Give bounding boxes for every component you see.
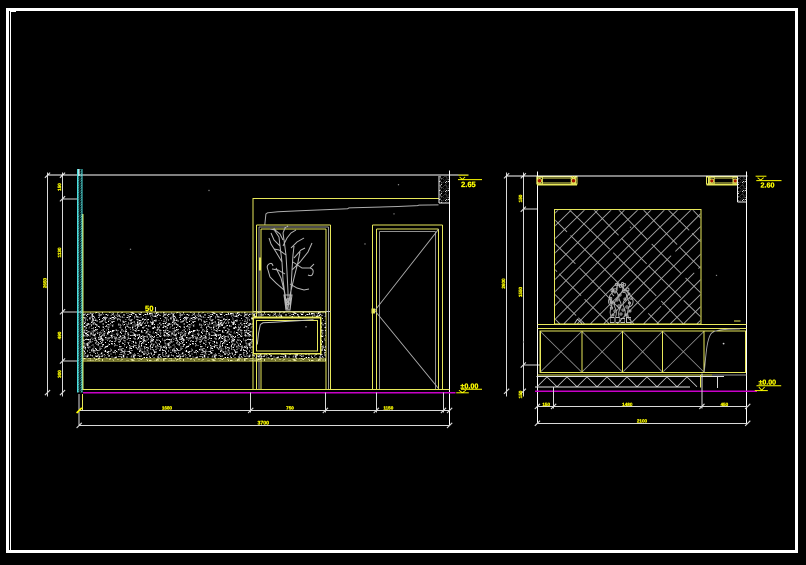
svg-text:3700: 3700: [258, 420, 270, 426]
svg-text:2600: 2600: [501, 278, 506, 289]
svg-text:150: 150: [57, 183, 62, 191]
svg-text:1150: 1150: [383, 406, 393, 411]
svg-text:750: 750: [286, 406, 294, 411]
svg-text:450: 450: [720, 402, 728, 407]
svg-text:1550: 1550: [518, 286, 523, 297]
svg-text:150: 150: [518, 390, 523, 398]
svg-text:2.60: 2.60: [761, 180, 775, 189]
svg-text:1680: 1680: [162, 406, 173, 411]
svg-text:50: 50: [145, 304, 153, 313]
svg-text:490: 490: [57, 331, 62, 339]
svg-text:2.65: 2.65: [461, 180, 477, 189]
svg-text:2100: 2100: [637, 419, 648, 424]
svg-text:300: 300: [57, 370, 62, 378]
svg-text:150: 150: [542, 402, 550, 407]
svg-text:1130: 1130: [57, 247, 62, 257]
svg-text:150: 150: [518, 194, 523, 202]
svg-text:2650: 2650: [42, 277, 47, 288]
svg-text:1480: 1480: [622, 402, 633, 407]
